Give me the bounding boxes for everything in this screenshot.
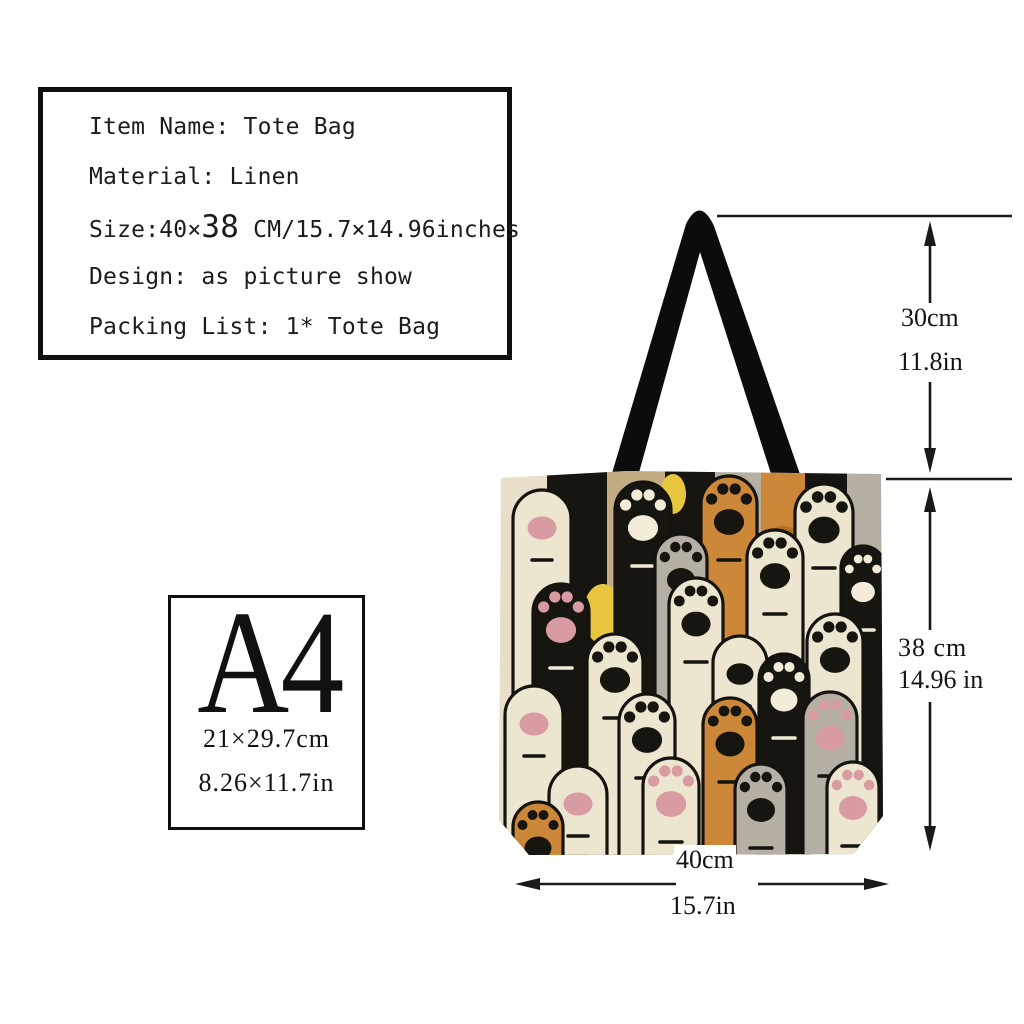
arrowhead-up-icon: [924, 221, 936, 246]
tote-bag-image: [497, 466, 883, 856]
product-infographic: Item Name: Tote Bag Material: Linen Size…: [0, 0, 1024, 1024]
handle-drop-label-in: 11.8in: [896, 347, 965, 377]
bag-height-label-cm: 38 cm: [896, 633, 969, 663]
handle-drop-label-cm: 30cm: [899, 303, 961, 333]
arrowhead-left-icon: [515, 878, 540, 890]
bag-handle-icon: [610, 210, 802, 480]
bag-height-label-in: 14.96 in: [896, 665, 985, 695]
arrowhead-right-icon: [864, 878, 889, 890]
arrowhead-down-icon: [924, 826, 936, 851]
bag-width-label-in: 15.7in: [668, 891, 738, 921]
arrowhead-up-icon: [924, 487, 936, 512]
arrowhead-down-icon: [924, 448, 936, 473]
bag-width-label-cm: 40cm: [674, 845, 736, 875]
